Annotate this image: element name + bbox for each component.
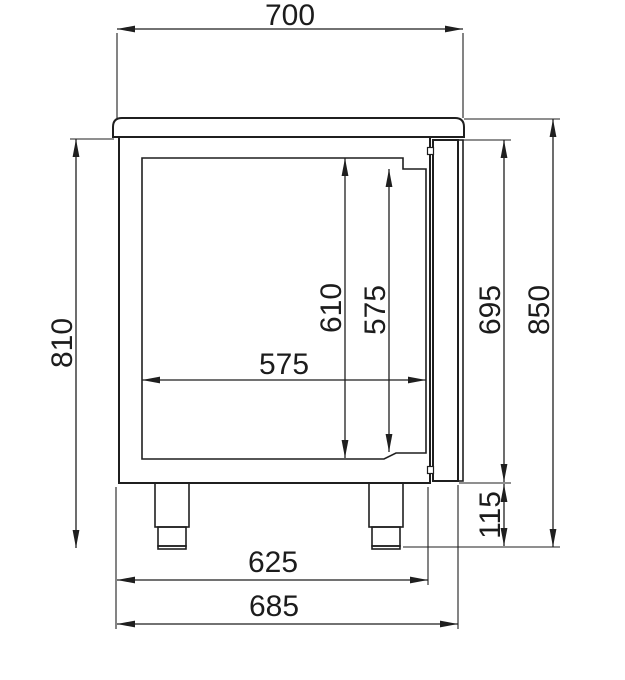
leg-left-foot [158,527,186,546]
technical-drawing-page: 700 810 610 575 575 695 [0,0,625,680]
counter-structure [113,118,464,549]
dim-label-overall-width: 685 [249,590,299,623]
dim-label-door-height: 695 [474,285,507,335]
door-outer-face [458,140,463,481]
dim-door-height: 695 [459,140,511,483]
leg-left [155,483,189,549]
leg-left-foot-base [158,546,186,549]
dim-label-leg-height: 115 [474,491,507,539]
dim-worktop-width: 700 [117,0,463,118]
door-hinge-top-icon [428,148,434,155]
dim-inner-width: 575 [142,348,426,381]
worktop [113,118,464,137]
dim-label-inner-height-right: 575 [359,285,392,335]
dim-label-inner-width: 575 [259,348,309,381]
door-hinge-bottom-icon [428,467,434,474]
dim-inner-height-left: 610 [315,158,348,458]
leg-left-upper [155,483,189,527]
dim-inner-height-right: 575 [359,169,392,452]
leg-right-upper [369,483,403,527]
counter-side-section-drawing: 700 810 610 575 575 695 [0,0,625,680]
dim-label-body-height: 810 [46,318,79,368]
leg-right-foot-base [372,546,400,549]
dim-body-height: 810 [46,139,114,548]
leg-right-foot [372,527,400,546]
dim-label-body-width: 625 [248,546,298,579]
dim-label-total-height: 850 [523,285,556,335]
door-panel [433,140,458,481]
dim-label-worktop-width: 700 [265,0,315,32]
dim-label-inner-height-left: 610 [315,283,348,333]
leg-right [369,483,403,549]
dim-leg-height: 115 [474,484,507,546]
